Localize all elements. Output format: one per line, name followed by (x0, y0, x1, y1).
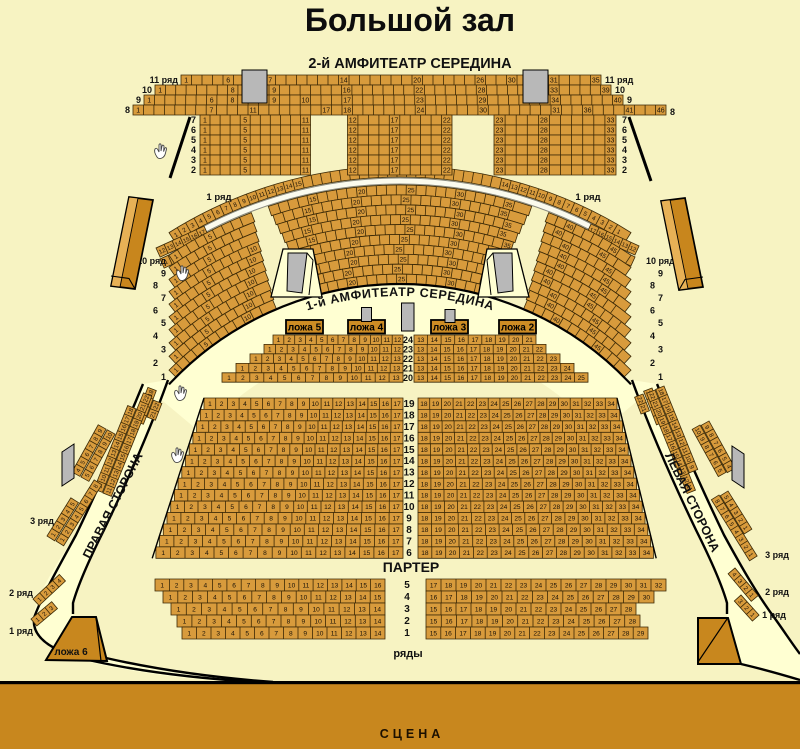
svg-text:1 ряд: 1 ряд (762, 610, 786, 620)
svg-text:7: 7 (658, 293, 663, 303)
svg-text:181920212223242526272829303132: 1819202122232425262728293031323334 (421, 527, 645, 534)
svg-text:20: 20 (403, 373, 413, 383)
svg-text:10: 10 (403, 502, 415, 513)
svg-text:8: 8 (650, 281, 655, 291)
svg-text:9: 9 (406, 514, 412, 525)
svg-text:10: 10 (615, 85, 625, 95)
svg-text:181920212223242526272829303132: 1819202122232425262728293031323334 (420, 436, 623, 443)
svg-text:25: 25 (402, 217, 410, 224)
svg-text:181920212223242526272829303132: 1819202122232425262728293031323334 (420, 401, 615, 408)
svg-text:25: 25 (401, 237, 409, 244)
svg-text:7: 7 (161, 293, 166, 303)
svg-text:13: 13 (403, 468, 415, 479)
svg-text:2: 2 (622, 165, 627, 175)
svg-text:15: 15 (403, 445, 415, 456)
svg-text:2: 2 (650, 358, 655, 368)
svg-text:1: 1 (658, 372, 663, 382)
svg-text:181920212223242526272829303132: 1819202122232425262728293031323334 (421, 470, 632, 477)
svg-text:20: 20 (351, 239, 359, 247)
svg-text:18: 18 (403, 410, 415, 421)
svg-text:8: 8 (406, 525, 412, 536)
svg-text:12: 12 (403, 479, 415, 490)
svg-text:ложа 3: ложа 3 (433, 323, 467, 334)
svg-text:ложа 2: ложа 2 (501, 323, 535, 334)
svg-text:4: 4 (622, 145, 627, 155)
svg-text:1 ряд: 1 ряд (575, 192, 600, 203)
svg-text:25: 25 (395, 247, 403, 254)
svg-text:181920212223242526272829303132: 1819202122232425262728293031323334 (421, 539, 648, 546)
svg-text:СЦЕНА: СЦЕНА (380, 727, 445, 741)
svg-text:10 ряд: 10 ряд (646, 256, 675, 266)
svg-text:181920212223242526272829303132: 1819202122232425262728293031323334 (421, 493, 637, 500)
svg-text:ряды: ряды (393, 648, 422, 660)
svg-text:181920212223242526272829303132: 1819202122232425262728293031323334 (420, 413, 618, 420)
svg-text:7: 7 (622, 115, 627, 125)
svg-text:2-й АМФИТЕАТР СЕРЕДИНА: 2-й АМФИТЕАТР СЕРЕДИНА (308, 56, 512, 72)
svg-text:5: 5 (658, 318, 663, 328)
svg-text:181920212223242526272829303132: 1819202122232425262728293031323334 (421, 504, 640, 511)
svg-text:30: 30 (451, 200, 459, 208)
svg-text:3: 3 (404, 604, 410, 615)
svg-text:4: 4 (191, 145, 196, 155)
svg-text:25: 25 (407, 207, 415, 214)
svg-text:2 ряд: 2 ряд (765, 587, 789, 597)
svg-text:9: 9 (161, 268, 166, 278)
svg-text:20: 20 (358, 189, 366, 197)
svg-text:11 ряд: 11 ряд (150, 75, 179, 85)
svg-text:8: 8 (670, 107, 675, 117)
svg-text:123456789101112131415: 123456789101112131415 (169, 594, 382, 601)
svg-text:9: 9 (658, 268, 663, 278)
svg-text:ложа 4: ложа 4 (350, 323, 384, 334)
svg-text:30: 30 (443, 269, 451, 277)
svg-text:14: 14 (403, 456, 415, 467)
svg-text:11: 11 (404, 491, 415, 502)
svg-text:5: 5 (622, 135, 627, 145)
svg-text:30: 30 (444, 249, 452, 257)
svg-text:5: 5 (404, 580, 410, 591)
svg-text:6: 6 (406, 548, 412, 559)
svg-text:ложа 6: ложа 6 (54, 647, 88, 658)
svg-text:3 ряд: 3 ряд (30, 516, 54, 526)
svg-text:6: 6 (622, 125, 627, 135)
svg-text:4: 4 (650, 331, 655, 341)
svg-text:3 ряд: 3 ряд (765, 550, 789, 560)
svg-text:25: 25 (394, 266, 402, 273)
svg-text:1: 1 (161, 372, 166, 382)
svg-text:2 ряд: 2 ряд (9, 588, 33, 598)
svg-text:161718192021222324252627282930: 161718192021222324252627282930 (430, 594, 650, 601)
svg-text:181920212223242526272829303132: 1819202122232425262728293031323334 (421, 481, 634, 488)
svg-text:20: 20 (357, 209, 365, 217)
svg-text:2: 2 (404, 616, 410, 627)
svg-text:7: 7 (191, 115, 196, 125)
svg-text:2: 2 (191, 165, 196, 175)
svg-text:2: 2 (153, 358, 158, 368)
svg-text:7: 7 (406, 536, 412, 547)
svg-text:1 ряд: 1 ряд (206, 192, 231, 203)
svg-text:25: 25 (398, 276, 406, 283)
svg-text:181920212223242526272829303132: 1819202122232425262728293031323334 (420, 424, 620, 431)
svg-text:19: 19 (403, 399, 415, 410)
svg-text:8: 8 (125, 105, 130, 115)
svg-text:4: 4 (153, 331, 158, 341)
svg-text:16: 16 (403, 433, 415, 444)
svg-text:3: 3 (191, 155, 196, 165)
svg-text:20: 20 (353, 199, 361, 207)
svg-text:9: 9 (136, 95, 141, 105)
svg-text:17: 17 (403, 422, 415, 433)
svg-text:6: 6 (153, 305, 158, 315)
svg-text:22: 22 (403, 354, 413, 364)
svg-text:131415161718192021: 131415161718192021 (417, 337, 533, 344)
svg-text:9: 9 (627, 95, 632, 105)
svg-text:25: 25 (407, 187, 415, 194)
svg-text:181920212223242526272829303132: 1819202122232425262728293031323334 (421, 447, 626, 454)
svg-text:3: 3 (622, 155, 627, 165)
svg-text:25: 25 (406, 227, 414, 234)
svg-text:3: 3 (658, 345, 663, 355)
svg-text:181920212223242526272829303132: 1819202122232425262728293031323334 (421, 516, 642, 523)
svg-text:ложа 5: ложа 5 (288, 323, 322, 334)
svg-text:10: 10 (142, 85, 152, 95)
svg-text:181920212223242526272829303132: 1819202122232425262728293031323334 (421, 458, 629, 465)
svg-text:20: 20 (357, 228, 365, 236)
svg-text:4: 4 (404, 592, 410, 603)
svg-text:11 ряд: 11 ряд (605, 75, 634, 85)
svg-text:23: 23 (403, 344, 413, 354)
svg-text:8: 8 (153, 281, 158, 291)
svg-text:1: 1 (404, 628, 410, 639)
svg-text:5: 5 (191, 135, 196, 145)
svg-text:6: 6 (650, 305, 655, 315)
svg-text:25: 25 (402, 197, 410, 204)
svg-text:Большой зал: Большой зал (305, 2, 515, 38)
svg-text:3: 3 (161, 345, 166, 355)
svg-text:181920212223242526272829303132: 1819202122232425262728293031323334 (421, 550, 650, 557)
svg-text:20: 20 (352, 219, 360, 227)
svg-text:5: 5 (161, 318, 166, 328)
svg-text:6: 6 (191, 125, 196, 135)
svg-text:25: 25 (400, 256, 408, 263)
svg-text:151617181920212223242526272829: 151617181920212223242526272829 (430, 630, 645, 637)
svg-text:1 ряд: 1 ряд (9, 626, 33, 636)
svg-text:20: 20 (350, 259, 358, 267)
svg-text:ПАРТЕР: ПАРТЕР (383, 559, 440, 575)
